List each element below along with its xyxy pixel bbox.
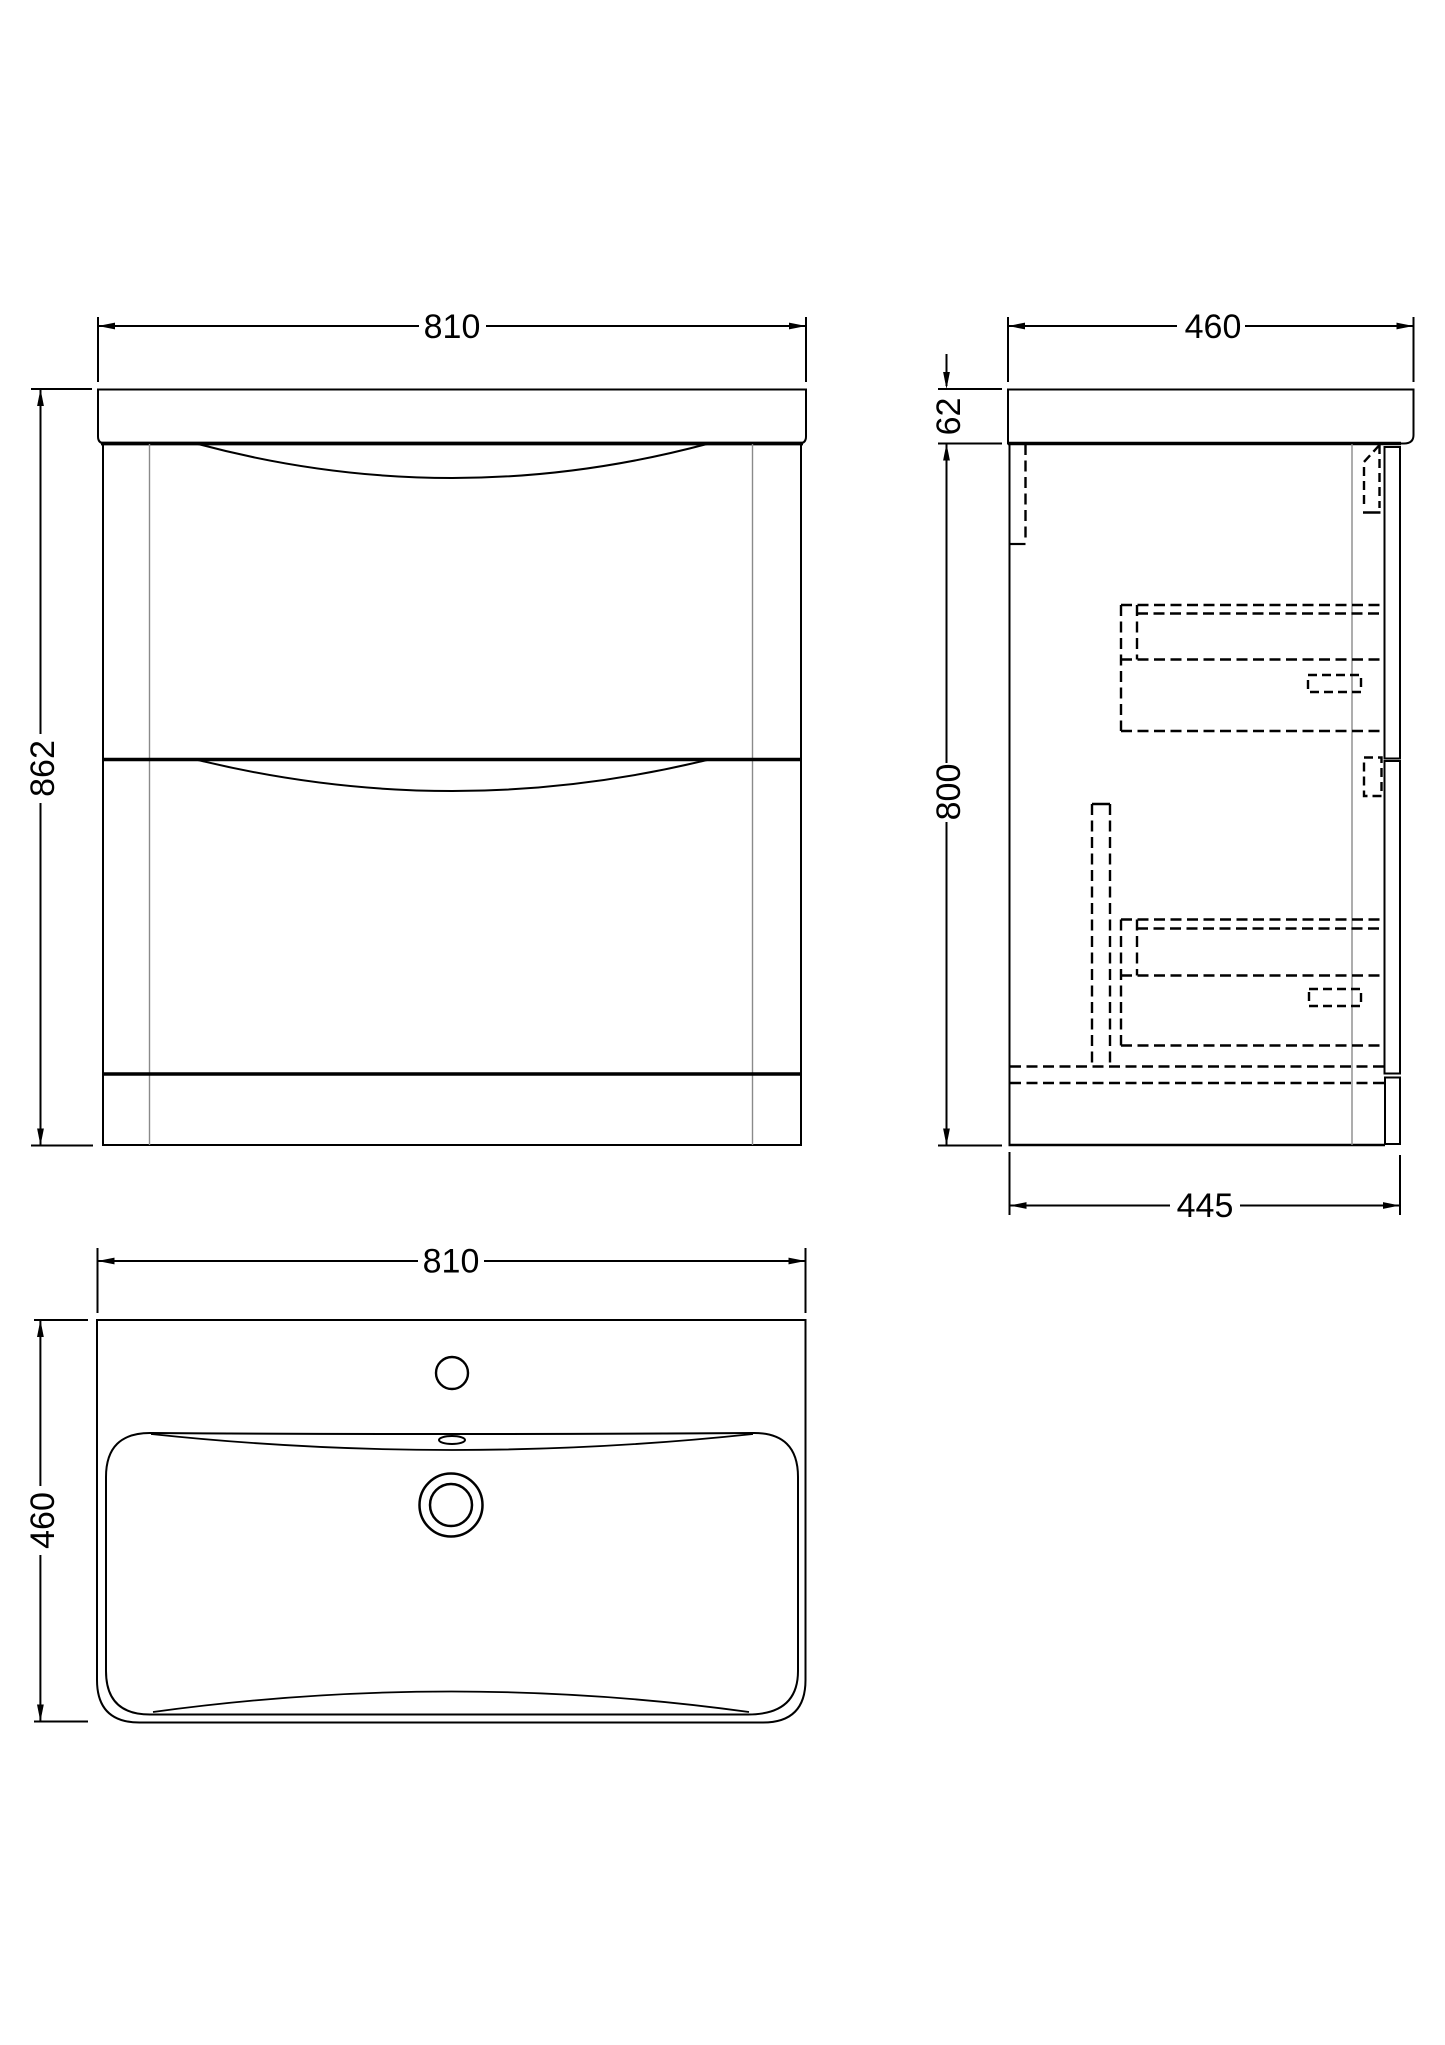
svg-text:460: 460	[1185, 308, 1242, 346]
svg-text:460: 460	[24, 1492, 62, 1549]
svg-text:445: 445	[1177, 1187, 1234, 1225]
svg-text:800: 800	[930, 764, 968, 821]
svg-text:810: 810	[424, 308, 481, 346]
svg-text:810: 810	[423, 1243, 480, 1281]
svg-text:62: 62	[930, 398, 968, 436]
svg-text:862: 862	[24, 740, 62, 797]
